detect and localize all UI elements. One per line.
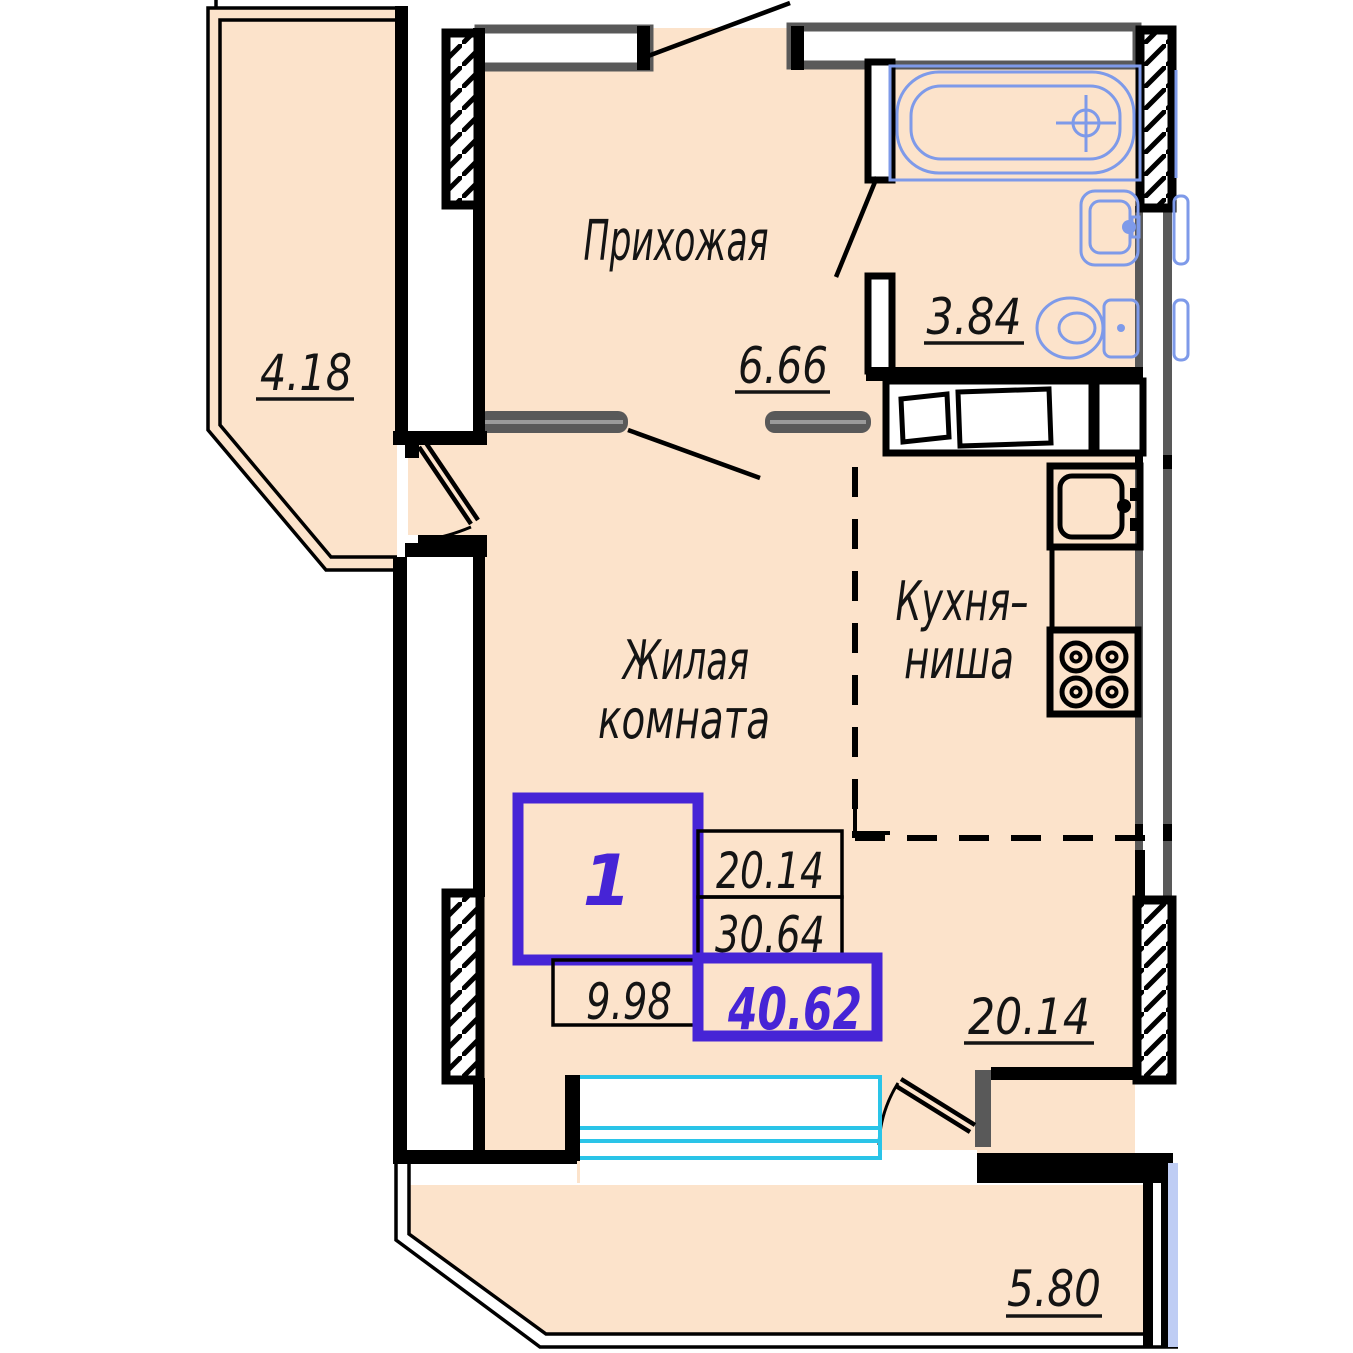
floor-plan-page: 1 20.14 30.64 9.98 40.62 Прихожая 6.66 3… [0, 0, 1353, 1353]
balcony-bottom-area: 5.80 [1007, 1260, 1101, 1318]
balcony-door-jamb [975, 1070, 991, 1147]
bathroom-wall-lower [868, 276, 892, 371]
hallway-area: 6.66 [738, 337, 828, 395]
floor-plan-drawing: 1 20.14 30.64 9.98 40.62 Прихожая 6.66 3… [0, 0, 1353, 1353]
top-wall-left-piece [479, 29, 649, 67]
column-top-right [1140, 30, 1172, 208]
stamp-value-middle: 30.64 [715, 906, 825, 964]
stamp-value-top: 20.14 [716, 842, 824, 900]
south-wall-left [393, 1150, 577, 1164]
stamp-value-total: 40.62 [727, 975, 862, 1043]
column-top-left [446, 33, 478, 205]
stamp-value-left: 9.98 [586, 973, 672, 1031]
neighbor-glazing-strip [1168, 1163, 1178, 1347]
column-bottom-left [446, 893, 480, 1080]
living-room-area: 20.14 [968, 988, 1090, 1046]
kitchen-label-line1: Кухня– [896, 570, 1029, 633]
kitchen-label-line2: ниша [904, 628, 1014, 691]
column-bottom-right [1137, 900, 1172, 1080]
hallway-label: Прихожая [584, 209, 769, 274]
kitchen-cabinet [886, 381, 1143, 453]
neighbor-fixture-hints [1174, 70, 1188, 360]
right-wall-outer-line [1163, 206, 1172, 902]
top-wall-right-piece [791, 27, 1137, 65]
balcony-left-floor [208, 8, 397, 570]
stamp-room-count: 1 [583, 840, 632, 922]
living-room-label-line2: комната [598, 688, 770, 751]
bathroom-wall-upper [868, 62, 892, 180]
living-room-label-line1: Жилая [621, 629, 749, 692]
balcony-left-area: 4.18 [260, 344, 352, 402]
window-jamb [565, 1075, 580, 1161]
bathroom-area: 3.84 [927, 288, 1022, 346]
